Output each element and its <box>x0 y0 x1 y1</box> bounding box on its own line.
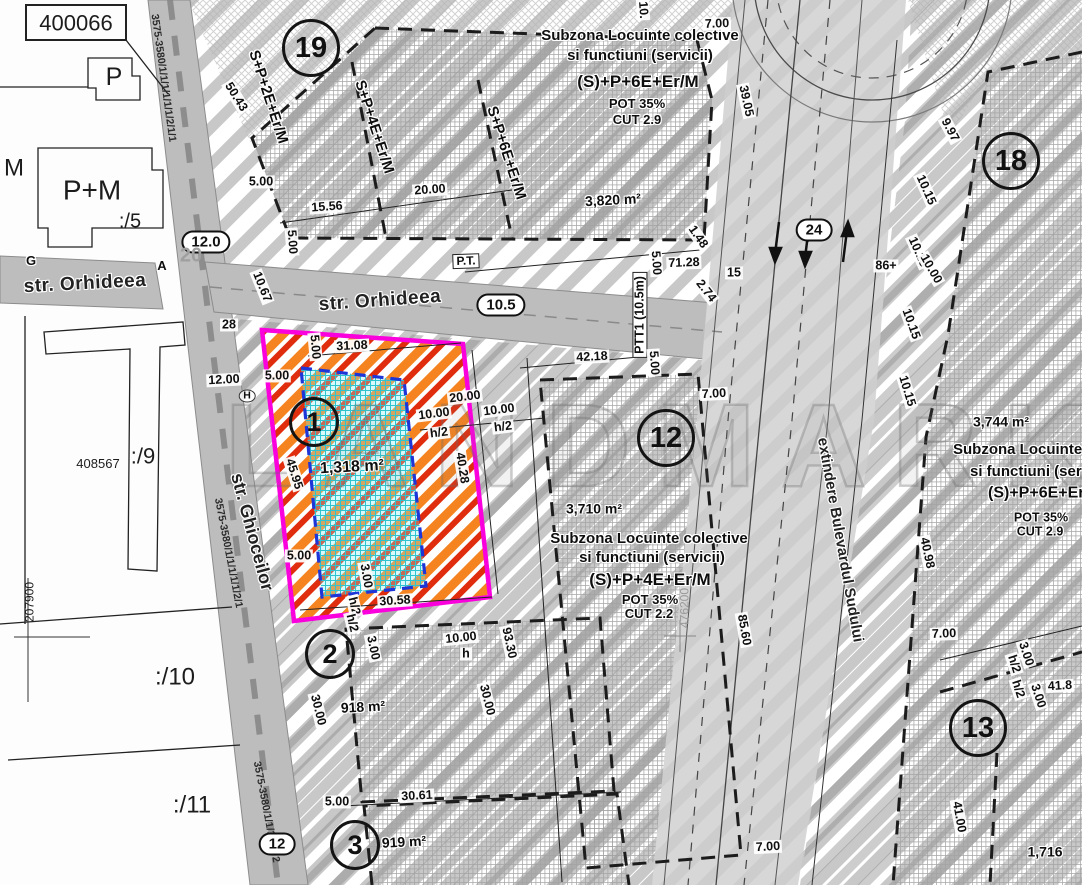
zone18-cut: CUT 2.9 <box>1017 525 1064 538</box>
parcel1716-area: 1,716 <box>1027 845 1062 860</box>
dim-41-8: 41.8 <box>1046 679 1075 694</box>
dim-5-00-c: 5.00 <box>648 248 663 277</box>
node-letter-g: G <box>26 254 36 268</box>
zone-circle-19: 19 <box>282 19 340 77</box>
coord-label-y: 207900 <box>24 582 37 622</box>
parcel-label-11: :/11 <box>173 792 211 817</box>
zone12-cut: CUT 2.2 <box>625 607 673 621</box>
zone12-area: 3,710 m² <box>566 502 622 517</box>
cadastral-map: LANDMARK str. Orhideea str. Orhideea str… <box>0 0 1082 885</box>
zone-circle-13: 13 <box>949 699 1007 757</box>
dim-7-00-right: 7.00 <box>930 627 959 641</box>
parcel-number-400066: 400066 <box>39 11 112 34</box>
building-label-m: M <box>4 155 24 180</box>
road-width-10-5: 10.5 <box>476 294 525 317</box>
building-label-p: P <box>106 64 123 90</box>
zone18-title-2: si functiuni (ser <box>970 464 1082 480</box>
dim-42-18: 42.18 <box>574 350 610 365</box>
zone-circle-12: 12 <box>637 409 695 467</box>
road-width-24: 24 <box>796 219 833 242</box>
dim-5-00-f: 5.00 <box>263 369 291 382</box>
parcel-number-408567: 408567 <box>76 457 119 471</box>
dim-71-28: 71.28 <box>666 256 702 270</box>
parcel919-area: 919 m² <box>381 834 426 851</box>
zone12-regime: (S)+P+4E+Er/M <box>589 571 710 589</box>
parcel918-area: 918 m² <box>340 699 385 716</box>
house-number-28: 28 <box>220 318 238 331</box>
zone19-pot: POT 35% <box>609 97 665 111</box>
zone18-title-1: Subzona Locuinte <box>953 442 1082 458</box>
dim-5-00-a: 5.00 <box>247 175 275 188</box>
dim-h2-c: h/2 <box>427 425 450 441</box>
dim-5-00-b: 5.00 <box>284 227 299 256</box>
dim-7-00-bottom: 7.00 <box>754 840 783 855</box>
zone18-area: 3,744 m² <box>973 415 1029 430</box>
dim-5-00-g: 5.00 <box>285 549 313 562</box>
zone12-pot: POT 35% <box>622 593 678 607</box>
dim-7-00-top: 7.00 <box>703 17 732 31</box>
dim-30-58: 30.58 <box>377 593 413 609</box>
ptt1-profile-box: PTT1 (10.5m) <box>632 272 647 358</box>
zone12-title-2: si functiuni (servicii) <box>579 550 725 566</box>
dim-86: 86+ <box>873 259 898 272</box>
dim-h2-d: h/2 <box>491 419 514 435</box>
parcel-label-10: :/10 <box>155 664 195 689</box>
parcel-label-5: :/5 <box>119 212 141 233</box>
zone19-area: 3,820 m² <box>585 191 642 209</box>
zone12-title-1: Subzona Locuinte colective <box>550 531 748 547</box>
node-letter-a: A <box>157 259 166 273</box>
zone19-cut: CUT 2.9 <box>613 113 661 127</box>
dim-20-00-a: 20.00 <box>412 182 448 198</box>
dim-h: h <box>460 647 472 660</box>
dim-15: 15 <box>725 266 743 279</box>
dim-5-00-d: 5.00 <box>646 348 661 377</box>
road-segment-20: 20 <box>180 246 202 267</box>
dim-12-00: 12.00 <box>206 373 242 388</box>
dim-15-56: 15.56 <box>309 199 345 215</box>
zone18-regime: (S)+P+6E+Er <box>988 486 1082 503</box>
building-label-pm: P+M <box>63 175 121 204</box>
dim-5-00-h: 5.00 <box>323 795 351 808</box>
zone18-pot: POT 35% <box>1014 511 1068 524</box>
dim-5-00-e: 5.00 <box>307 332 323 361</box>
zone-circle-1: 1 <box>289 397 339 447</box>
road-width-12: 12 <box>259 833 296 856</box>
dim-31-08: 31.08 <box>334 339 370 354</box>
parcel1-area: 1,318 m² <box>320 458 385 478</box>
coord-label-x: 476200 <box>679 588 692 628</box>
node-letter-h: H <box>239 389 256 402</box>
zone-circle-18: 18 <box>982 132 1040 190</box>
dim-10-cut: 10. <box>636 0 651 21</box>
zone-circle-3: 3 <box>330 820 380 870</box>
dim-30-61: 30.61 <box>399 789 435 804</box>
pt-station-box: P.T. <box>452 253 480 269</box>
dim-7-00-mid: 7.00 <box>700 387 729 402</box>
zone19-title-2: si functiuni (servicii) <box>567 48 713 64</box>
zone19-regime: (S)+P+6E+Er/M <box>577 73 698 91</box>
zone-circle-2: 2 <box>305 629 355 679</box>
parcel-label-9: :/9 <box>131 444 155 467</box>
